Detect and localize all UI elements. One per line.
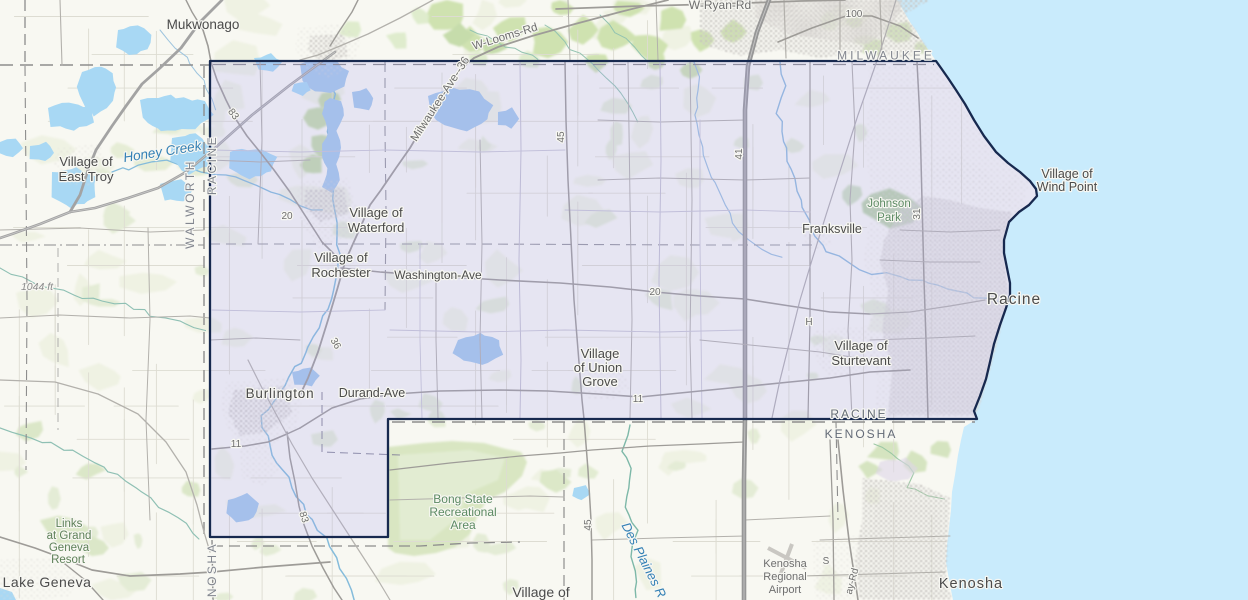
svg-text:at Grand: at Grand — [47, 530, 92, 542]
svg-text:31: 31 — [912, 208, 923, 220]
svg-text:S: S — [823, 556, 830, 567]
svg-text:Village of: Village of — [59, 154, 113, 169]
svg-text:1044 ft: 1044 ft — [21, 281, 54, 293]
svg-text:Village of: Village of — [512, 584, 569, 600]
svg-text:Durand-Ave: Durand-Ave — [339, 386, 406, 400]
svg-text:20: 20 — [649, 287, 661, 298]
svg-text:Burlington: Burlington — [246, 386, 315, 401]
svg-text:KENOSHA: KENOSHA — [825, 427, 898, 441]
svg-text:Village: Village — [581, 346, 620, 361]
svg-text:East Troy: East Troy — [59, 169, 114, 184]
svg-text:Geneva: Geneva — [49, 542, 90, 554]
svg-text:Kenosha: Kenosha — [939, 576, 1003, 592]
svg-text:H: H — [805, 317, 812, 328]
svg-text:Village of: Village of — [834, 338, 888, 353]
svg-text:KENOSHA: KENOSHA — [205, 542, 219, 600]
svg-text:45: 45 — [556, 131, 567, 143]
svg-text:Regional: Regional — [763, 571, 806, 583]
svg-text:Links: Links — [56, 518, 83, 530]
svg-text:Bong State: Bong State — [433, 492, 493, 506]
svg-text:41: 41 — [734, 148, 745, 160]
svg-text:Johnson: Johnson — [867, 198, 910, 210]
svg-text:20: 20 — [281, 211, 293, 222]
svg-text:Waterford: Waterford — [348, 220, 405, 235]
svg-text:RACINE: RACINE — [830, 407, 887, 421]
svg-text:Village of: Village of — [349, 205, 403, 220]
svg-text:Airport: Airport — [769, 584, 801, 596]
svg-text:Park: Park — [877, 212, 901, 224]
svg-text:Franksville: Franksville — [802, 222, 862, 236]
svg-text:MILWAUKEE: MILWAUKEE — [837, 49, 935, 63]
svg-text:Sturtevant: Sturtevant — [831, 353, 891, 368]
svg-text:Grove: Grove — [582, 374, 617, 389]
svg-text:Village of: Village of — [314, 250, 368, 265]
svg-text:Recreational: Recreational — [429, 505, 496, 519]
svg-text:Area: Area — [450, 518, 476, 532]
svg-text:Racine: Racine — [987, 291, 1041, 308]
svg-text:11: 11 — [231, 439, 242, 450]
svg-text:RACINE: RACINE — [205, 135, 219, 195]
svg-text:Wind Point: Wind Point — [1037, 180, 1098, 194]
svg-text:Washington-Ave: Washington-Ave — [394, 268, 482, 282]
svg-text:100: 100 — [846, 9, 863, 20]
svg-text:Kenosha: Kenosha — [763, 558, 807, 570]
svg-text:Resort: Resort — [51, 554, 86, 566]
svg-text:of Union: of Union — [574, 360, 622, 375]
svg-text:W-Ryan-Rd: W-Ryan-Rd — [689, 0, 751, 12]
svg-text:Mukwonago: Mukwonago — [167, 17, 240, 32]
svg-text:45: 45 — [583, 519, 594, 531]
svg-text:11: 11 — [633, 394, 644, 405]
svg-text:Lake Geneva: Lake Geneva — [3, 574, 92, 590]
svg-text:Rochester: Rochester — [311, 265, 371, 280]
svg-text:WALWORTH: WALWORTH — [183, 159, 197, 249]
svg-text:Village of: Village of — [1041, 167, 1093, 181]
